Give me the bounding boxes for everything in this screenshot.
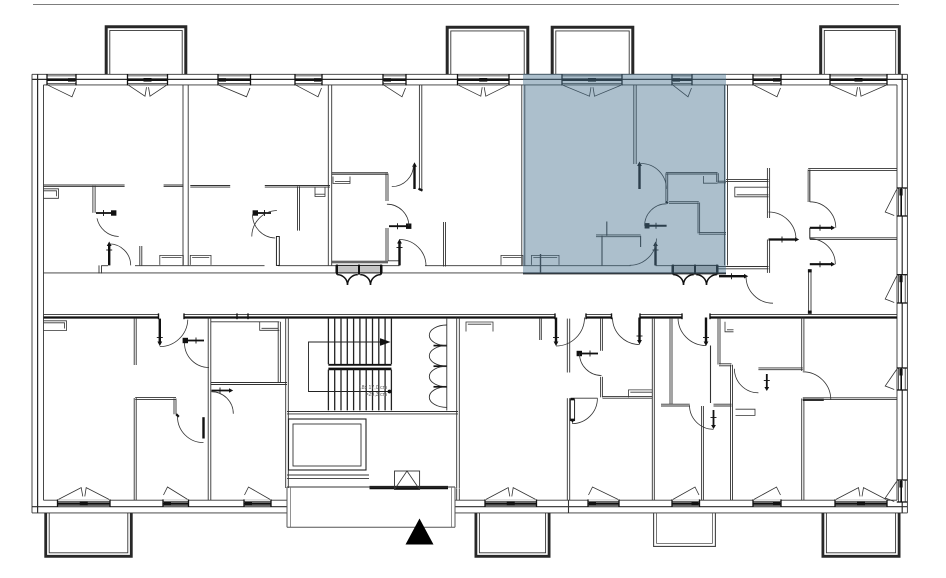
svg-text:18x 17,0 cm: 18x 17,0 cm xyxy=(359,385,387,391)
svg-text:=29,3 cm: =29,3 cm xyxy=(366,392,387,398)
